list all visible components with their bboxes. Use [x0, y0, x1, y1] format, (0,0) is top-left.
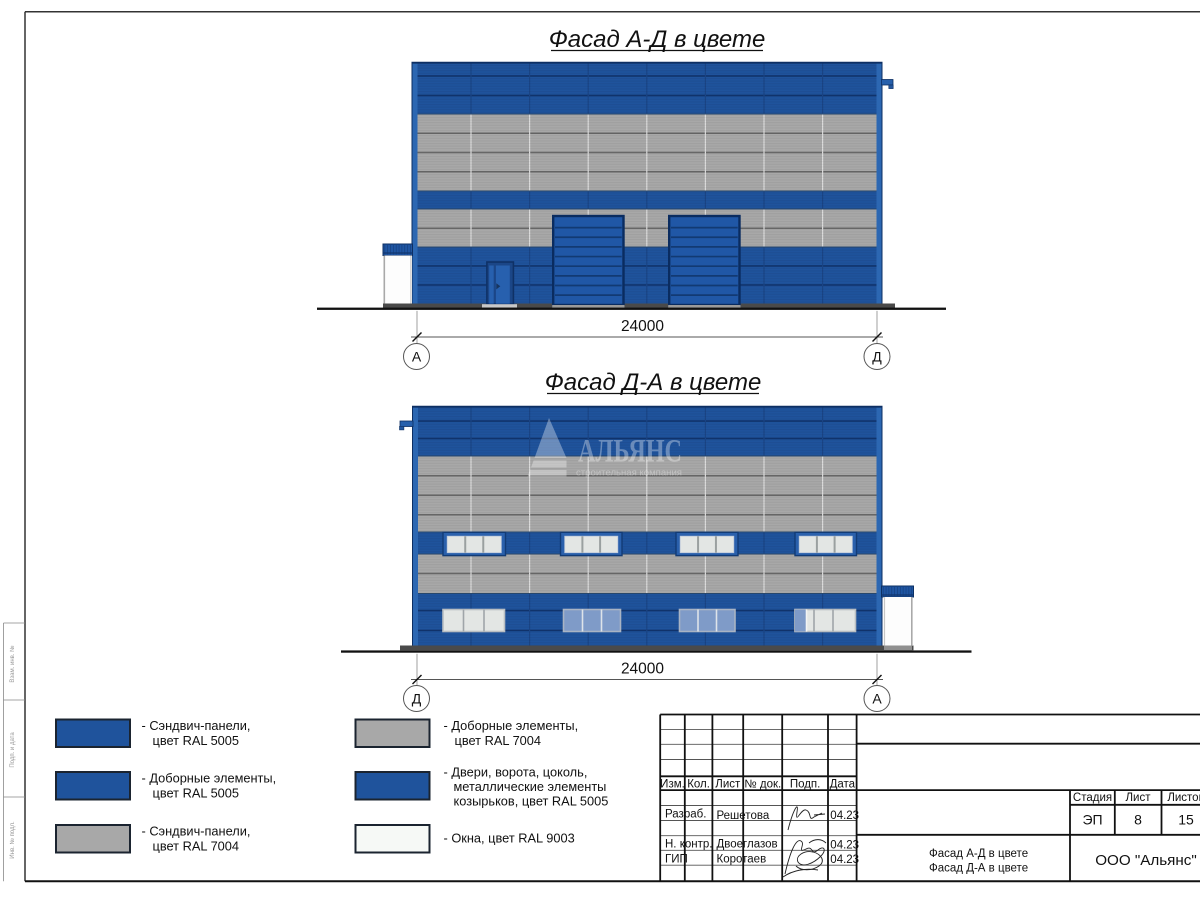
svg-text:Лист: Лист: [715, 778, 741, 790]
svg-text:04.23: 04.23: [830, 840, 859, 852]
svg-text:Фасад А-Д в цвете: Фасад А-Д в цвете: [929, 848, 1028, 860]
svg-text:04.23: 04.23: [830, 810, 859, 822]
svg-text:Д: Д: [872, 348, 882, 364]
svg-text:04.23: 04.23: [830, 854, 859, 866]
svg-text:металлические элементы: металлические элементы: [454, 779, 607, 794]
svg-text:А: А: [872, 690, 882, 706]
svg-text:Стадия: Стадия: [1073, 792, 1112, 804]
svg-text:Подп.: Подп.: [790, 778, 821, 790]
svg-text:козырьков, цвет RAL 5005: козырьков, цвет RAL 5005: [454, 794, 609, 809]
svg-text:Фасад А-Д в цвете: Фасад А-Д в цвете: [549, 26, 766, 53]
svg-text:- Окна, цвет RAL 9003: - Окна, цвет RAL 9003: [444, 831, 575, 846]
svg-text:Двоеглазов: Двоеглазов: [717, 839, 778, 851]
svg-text:Н. контр.: Н. контр.: [665, 839, 712, 851]
svg-text:- Сэндвич-панели,: - Сэндвич-панели,: [142, 824, 251, 839]
svg-text:15: 15: [1178, 812, 1194, 828]
svg-text:строительная компания: строительная компания: [576, 468, 682, 478]
svg-text:Д: Д: [412, 690, 422, 706]
svg-text:24000: 24000: [621, 661, 664, 678]
svg-text:Коротаев: Коротаев: [717, 853, 767, 865]
svg-text:№ док.: № док.: [744, 778, 781, 790]
svg-text:ГИП: ГИП: [665, 853, 688, 865]
svg-text:цвет RAL 7004: цвет RAL 7004: [153, 839, 240, 854]
svg-text:Лист: Лист: [1126, 792, 1152, 804]
svg-text:цвет RAL 7004: цвет RAL 7004: [455, 733, 542, 748]
svg-text:Фасад Д-А в цвете: Фасад Д-А в цвете: [929, 863, 1028, 875]
svg-text:Подп. и дата: Подп. и дата: [10, 732, 16, 768]
svg-text:цвет RAL 5005: цвет RAL 5005: [153, 733, 240, 748]
svg-text:Решетова: Решетова: [717, 810, 770, 822]
svg-text:- Двери, ворота, цоколь,: - Двери, ворота, цоколь,: [444, 765, 588, 780]
svg-text:8: 8: [1134, 812, 1142, 828]
svg-text:- Доборные элементы,: - Доборные элементы,: [142, 771, 277, 786]
svg-text:ООО "Альянс": ООО "Альянс": [1095, 852, 1197, 869]
svg-text:цвет RAL 5005: цвет RAL 5005: [153, 786, 240, 801]
svg-text:Взам. инв. №: Взам. инв. №: [9, 645, 16, 682]
svg-text:- Доборные элементы,: - Доборные элементы,: [444, 718, 579, 733]
svg-text:Разраб.: Разраб.: [665, 808, 706, 820]
svg-text:А: А: [412, 348, 422, 364]
svg-text:Фасад Д-А в цвете: Фасад Д-А в цвете: [545, 369, 762, 396]
svg-text:Кол.: Кол.: [687, 778, 710, 790]
svg-text:Инв. № подл.: Инв. № подл.: [9, 821, 16, 859]
svg-text:Дата: Дата: [830, 778, 856, 790]
svg-text:ЭП: ЭП: [1082, 812, 1102, 828]
svg-text:Листов: Листов: [1167, 792, 1200, 804]
svg-text:АЛЬЯНС: АЛЬЯНС: [578, 434, 682, 470]
svg-text:Изм.: Изм.: [660, 778, 685, 790]
svg-text:- Сэндвич-панели,: - Сэндвич-панели,: [142, 718, 251, 733]
svg-text:24000: 24000: [621, 318, 664, 335]
